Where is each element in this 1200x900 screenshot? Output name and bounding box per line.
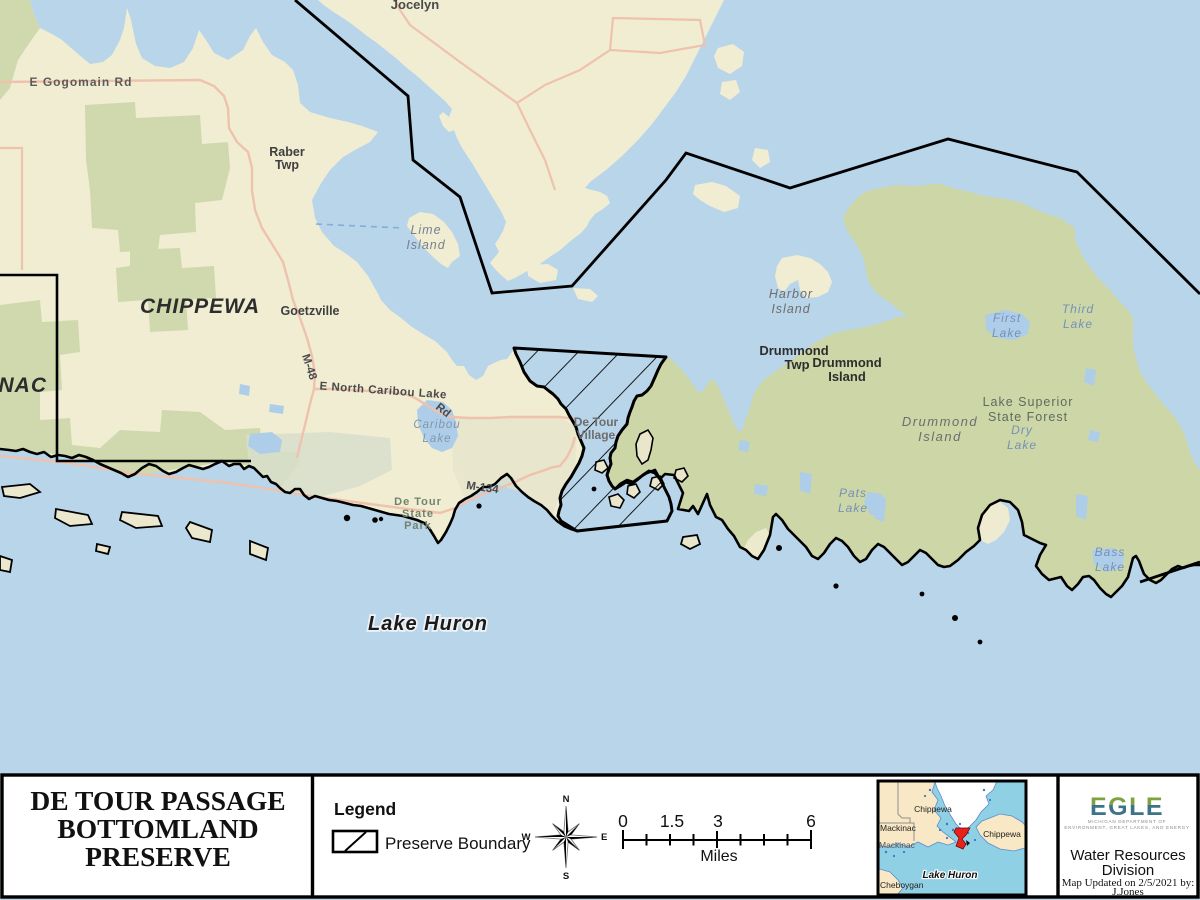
svg-text:3: 3 xyxy=(713,811,723,831)
svg-text:Lake Superior: Lake Superior xyxy=(983,395,1074,409)
svg-text:Lake: Lake xyxy=(423,433,452,445)
svg-text:Twp: Twp xyxy=(784,357,809,372)
svg-text:Drummond: Drummond xyxy=(812,355,881,370)
svg-text:J.Jones: J.Jones xyxy=(1112,886,1143,898)
svg-text:PRESERVE: PRESERVE xyxy=(85,841,231,872)
svg-text:Lake: Lake xyxy=(1095,560,1125,574)
svg-text:State: State xyxy=(402,508,434,520)
svg-text:De Tour: De Tour xyxy=(394,496,442,508)
svg-text:Lake: Lake xyxy=(992,326,1022,340)
svg-text:Miles: Miles xyxy=(700,848,737,865)
svg-text:Mackinac: Mackinac xyxy=(879,840,916,850)
svg-text:ENVIRONMENT, GREAT LAKES, AND: ENVIRONMENT, GREAT LAKES, AND ENERGY xyxy=(1064,825,1189,830)
svg-text:Harbor: Harbor xyxy=(769,287,813,301)
svg-text:Raber: Raber xyxy=(269,145,305,159)
svg-text:W: W xyxy=(522,832,531,843)
svg-text:Island: Island xyxy=(771,302,810,316)
svg-text:BOTTOMLAND: BOTTOMLAND xyxy=(57,813,258,844)
svg-text:MICHIGAN DEPARTMENT OF: MICHIGAN DEPARTMENT OF xyxy=(1088,819,1166,824)
svg-text:EGLE: EGLE xyxy=(1090,793,1164,821)
svg-text:Drummond: Drummond xyxy=(902,414,978,429)
svg-text:Lake: Lake xyxy=(838,501,868,515)
svg-text:Chippewa: Chippewa xyxy=(983,829,1021,839)
svg-text:Jocelyn: Jocelyn xyxy=(391,0,439,12)
svg-text:Mackinac: Mackinac xyxy=(880,823,917,833)
svg-text:First: First xyxy=(993,311,1021,325)
svg-text:INAC: INAC xyxy=(0,374,47,397)
svg-text:Cheboygan: Cheboygan xyxy=(880,880,924,890)
svg-text:Goetzville: Goetzville xyxy=(280,304,339,318)
svg-text:Lake Huron: Lake Huron xyxy=(922,870,977,881)
svg-text:Preserve Boundary: Preserve Boundary xyxy=(385,834,531,853)
svg-text:Pats: Pats xyxy=(839,486,867,500)
svg-text:Caribou: Caribou xyxy=(413,419,460,431)
svg-text:1.5: 1.5 xyxy=(660,811,684,831)
svg-text:State Forest: State Forest xyxy=(988,410,1068,424)
svg-text:E: E xyxy=(601,832,607,843)
svg-text:0: 0 xyxy=(618,811,628,831)
svg-text:6: 6 xyxy=(806,811,816,831)
svg-text:Island: Island xyxy=(828,369,866,384)
svg-text:De Tour: De Tour xyxy=(574,415,619,429)
svg-text:Park: Park xyxy=(404,520,432,532)
svg-text:Village: Village xyxy=(577,428,616,442)
svg-text:Third: Third xyxy=(1062,302,1094,316)
svg-text:E Gogomain Rd: E Gogomain Rd xyxy=(30,75,133,89)
svg-text:Bass: Bass xyxy=(1095,545,1126,559)
svg-text:DE TOUR PASSAGE: DE TOUR PASSAGE xyxy=(30,785,285,816)
svg-text:Chippewa: Chippewa xyxy=(914,804,952,814)
svg-text:S: S xyxy=(563,871,569,882)
svg-text:Lake: Lake xyxy=(1063,317,1093,331)
svg-text:Twp: Twp xyxy=(275,158,299,172)
svg-text:CHIPPEWA: CHIPPEWA xyxy=(140,295,260,318)
svg-text:Lake Huron: Lake Huron xyxy=(368,613,488,635)
svg-text:Legend: Legend xyxy=(334,799,396,819)
svg-text:Lake: Lake xyxy=(1007,438,1037,452)
svg-text:Island: Island xyxy=(406,238,445,252)
svg-text:Island: Island xyxy=(918,429,962,444)
svg-text:Dry: Dry xyxy=(1011,423,1033,437)
svg-text:Lime: Lime xyxy=(410,223,441,237)
svg-text:N: N xyxy=(563,794,570,805)
